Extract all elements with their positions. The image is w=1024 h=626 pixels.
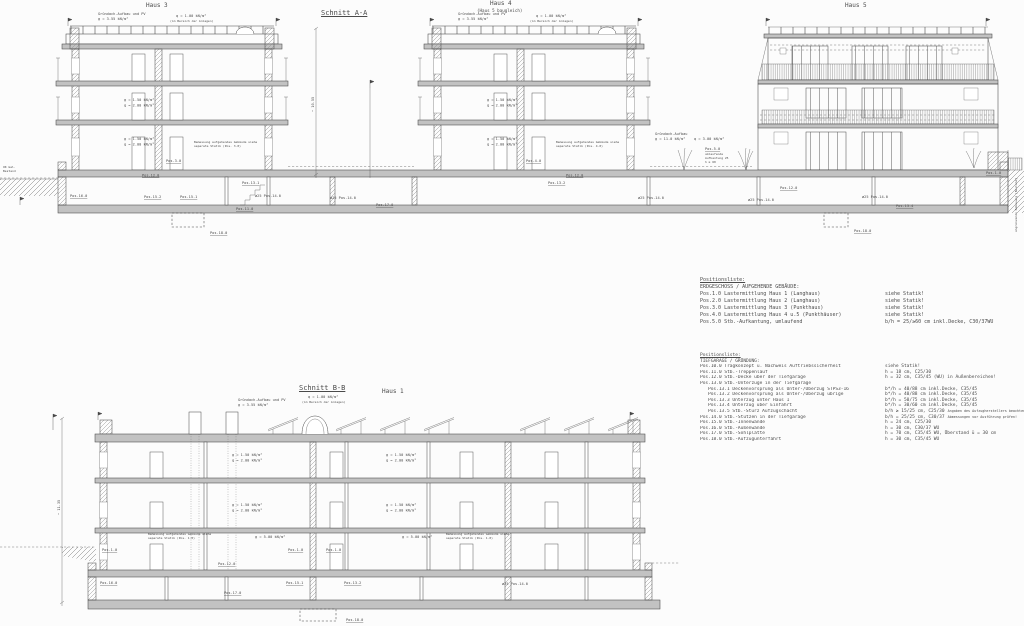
pv-panel-icon [336,418,366,435]
poslist-row: Pos.1.0 Lastermittlung Haus 1 (Langhaus)… [700,291,1020,298]
balcony-railing [762,110,994,124]
haus5-label: Haus 5 [845,2,867,9]
annotation: q = 1.00 kN/m² [536,14,566,18]
annotation: Gründach-Aufbau [655,132,687,136]
annotation: Pos.17.0 [376,203,393,207]
annotation: g = 1.50 kN/m² [487,137,517,141]
pv-panel-icon [380,418,410,435]
annotation: q = 2.00 kN/m² [487,143,517,147]
annotation: Pos.15.2 [144,195,161,199]
annotation: g = 1.50 kN/m² [232,453,262,457]
annotation: Pos.12.0 [566,174,583,178]
annotation: g = 5.00 kN/m² [402,535,432,539]
positionsliste-tiefgarage: Positionsliste: TIEFGARAGE / GRÜNDUNG: P… [700,353,1020,443]
annotation: Pos.13.2 [548,181,565,185]
marker-flag-icon [766,18,770,26]
poslist-row-text: Pos.3.0 Lastermittlung Haus 3 (Punkthaus… [700,305,885,312]
section-bb-title: Schnitt B-B [299,384,345,392]
roof-vent [226,412,238,434]
hedge [1008,158,1022,170]
haus1-section [95,412,645,570]
window-unit [806,132,846,170]
poslist-row: Pos.4.0 Lastermittlung Haus 4 u.5 (Punkt… [700,312,1020,319]
annotation: Gründach-Aufbau und PV [238,398,286,402]
haus4-sublabel: (Haus 5 baugleich) [477,8,522,13]
garage-column [165,577,168,600]
annotation: ø25 Pos.14.0 [255,194,281,198]
annotation: q = 2.00 kN/m² [487,104,517,108]
balcony-railing [762,64,994,80]
annotation: q = 3.00 kN/m² [694,137,724,141]
marker-flag-icon [20,197,24,205]
annotation: g = 1.50 kN/m² [487,98,517,102]
garage-floor-slab [58,205,1008,213]
annotation: separate Statik (Pos. 4.0) [556,144,603,148]
section-bb [0,412,680,621]
haus3-section [56,18,288,170]
annotation: g = 5.00 kN/m² [255,535,285,539]
poslist-subtitle: ERDGESCHOSS / AUFGEHENDE GEBÄUDE: [700,284,1020,291]
annotation: Pos.1.0 [288,548,303,552]
annotation: Pos.17.0 [224,591,241,595]
plant-icon [738,148,753,170]
haus4-label: Haus 4 [490,0,512,7]
annotation: (im Bereich der Anlagen) [170,19,214,23]
garage-outer-wall [645,577,652,600]
annotation: ø25 Pos.14.0 [638,196,664,200]
annotation: g = 1.50 kN/m² [232,503,262,507]
roof-vent [189,412,201,434]
poslist-row-value: siehe Statik! [885,291,924,298]
roof-arch-skylight [302,416,328,434]
annotation: Gründach-Aufbau und PV [98,12,146,16]
garage-outer-wall [88,577,96,600]
poslist-row-text: Pos.5.0 Stb.-Aufkantung, umlaufend [700,319,885,326]
annotation: Pos.18.0 [346,618,363,622]
pv-panel-icon [268,418,298,435]
marker-flag-icon [53,414,57,430]
poslist-title: Positionsliste: [700,277,1020,284]
poslist-row-value: b/h = 25/≥60 cm inkl.Decke, C30/37WU [885,319,993,326]
annotation: g = 1.50 kN/m² [124,98,154,102]
poslist-row: Pos.2.0 Lastermittlung Haus 2 (Langhaus)… [700,298,1020,305]
annotation: g = 1.50 kN/m² [386,453,416,457]
annotation: Pos.1.0 [986,171,1001,175]
annotation: separate Statik (Pos. 1.0) [446,536,493,540]
annotation: Pos.18.0 [854,229,871,233]
annotation: ø25 Pos.14.0 [748,198,774,202]
poslist-row-note: Abmessungen vor Ausführung prüfen! [948,415,1017,421]
garage-deck-slab [88,570,652,577]
poslist-row-text: Pos.1.0 Lastermittlung Haus 1 (Langhaus) [700,291,885,298]
haus5-elevation [738,18,1008,170]
annotation: Pos.11.0 [236,207,253,211]
garage-outer-wall [1000,177,1008,205]
haus3-label: Haus 3 [146,2,168,9]
marker-flag-icon [986,18,990,26]
annotation: q = 2.00 kN/m² [386,509,416,513]
garage-column [585,577,588,600]
annotation: (im Bereich der Anlagen) [530,19,574,23]
poslist-row-value: siehe Statik! [885,298,924,305]
poslist-row: Pos.3.0 Lastermittlung Haus 3 (Punkthaus… [700,305,1020,312]
garage-deck-slab [58,170,1008,177]
annotation: ø25 Pos.14.0 [330,196,356,200]
garage-column [225,177,228,205]
annotation: q = 2.00 kN/m² [124,104,154,108]
annotation: Pos.16.0 [70,194,87,198]
garage-floor-slab [88,600,660,609]
annotation: Pos.5.0 [705,147,720,151]
marker-flag-icon [630,412,634,420]
annotation: Pos.12.0 [780,186,797,190]
annotation: separate Statik (Pos. 1.0) [148,536,195,540]
annotation: ø25 Pos.14.0 [502,582,528,586]
annotation: ~ 10.55 [311,97,315,112]
annotation: Pos.13.4 [896,204,913,208]
annotation: q = 2.00 kN/m² [232,509,262,513]
poslist-row-text: Pos.18.0 Stb.-Aufzugunterfahrt [700,437,885,443]
marker-flag-icon [98,412,102,420]
annotation: q = 1.00 kN/m² [308,395,338,399]
annotation: g = 3.55 kN/m² [458,17,488,21]
garage-column [647,177,650,205]
pv-panel-icon [520,418,550,435]
annotation: Pos.16.0 [100,581,117,585]
garage-outer-wall [58,177,66,205]
poslist-row-value: siehe Statik! [885,312,924,319]
positionsliste-erdgeschoss: Positionsliste: ERDGESCHOSS / AUFGEHENDE… [700,277,1020,326]
garage-column [225,577,228,600]
annotation: Pos.15.1 [286,581,303,585]
elevator-pit [824,213,848,227]
plant-icon [966,148,981,168]
annotation: angrenzende Bebauung (Bestand) [1014,178,1018,232]
haus1-label: Haus 1 [382,388,404,395]
annotation: q = 2.00 kN/m² [386,459,416,463]
earth-hatch [62,547,96,562]
annotation: Pos.1.0 [102,548,117,552]
poslist-rows: Pos.1.0 Lastermittlung Haus 1 (Langhaus)… [700,291,1020,326]
annotation: ~ 11.35 [57,500,61,515]
annotation: g = 1.50 kN/m² [386,503,416,507]
elevator-pit [300,609,336,621]
garage-column [267,177,270,205]
annotation: q = 2.00 kN/m² [232,459,262,463]
annotation: Pos.12.0 [142,174,159,178]
annotation: Pos.13.1 [242,181,259,185]
annotation: Pos.12.0 [218,562,235,566]
marker-flag-icon [370,80,374,88]
poslist-row-value: h = 30 cm, C35/45 WU [885,437,939,443]
elevator-pit [172,213,204,227]
window-unit [862,132,902,170]
annotation: q = 1.00 kN/m² [176,14,206,18]
poslist-row-text: Pos.4.0 Lastermittlung Haus 4 u.5 (Punkt… [700,312,885,319]
annotation: q = 2.00 kN/m² [124,143,154,147]
garage-column [872,177,875,205]
annotation: g = 11.0 kN/m² [655,137,685,141]
annotation: Pos.18.0 [210,231,227,235]
annotation: Pos.3.0 [166,159,181,163]
annotation: g = 3.55 kN/m² [98,17,128,21]
section-aa-title: Schnitt A-A [321,9,367,17]
annotation: separate Statik (Pos. 3.0) [194,144,241,148]
earth-hatch [0,179,58,196]
annotation: Pos.1.0 [326,548,341,552]
annotation: ø25 Pos.14.0 [862,195,888,199]
annotation: h ≥ 60 [705,160,716,164]
plant-icon [678,148,692,170]
drawing-sheet: Gründach-Aufbau und PVg = 3.55 kN/m²q = … [0,0,1024,626]
annotation: Pos.4.0 [526,159,541,163]
poslist-row: Pos.18.0 Stb.-Aufzugunterfahrth = 30 cm,… [700,437,1020,443]
poslist-row-text: Pos.2.0 Lastermittlung Haus 2 (Langhaus) [700,298,885,305]
garage-column [420,577,423,600]
pv-panel-icon [424,418,454,435]
annotation: Pos.15.1 [180,195,197,199]
annotation: Pos.13.2 [344,581,361,585]
poslist-row-value: siehe Statik! [885,305,924,312]
roof-slab [95,434,645,442]
pv-panel-icon [564,418,594,435]
annotation: Bestand [3,169,16,173]
annotation: g = 1.50 kN/m² [124,137,154,141]
annotation: (im Bereich der Anlagen) [302,400,346,404]
poslist-rows: Pos.10.0 Tragkonzept u. Nachweis Auftrie… [700,364,1020,442]
poslist-row: Pos.5.0 Stb.-Aufkantung, umlaufendb/h = … [700,319,1020,326]
poslist-row-value: h = 32 cm, C35/45 (WU) in Außenbereichen… [885,375,996,381]
haus4-section [418,18,650,170]
annotation: g = 3.55 kN/m² [238,403,268,407]
